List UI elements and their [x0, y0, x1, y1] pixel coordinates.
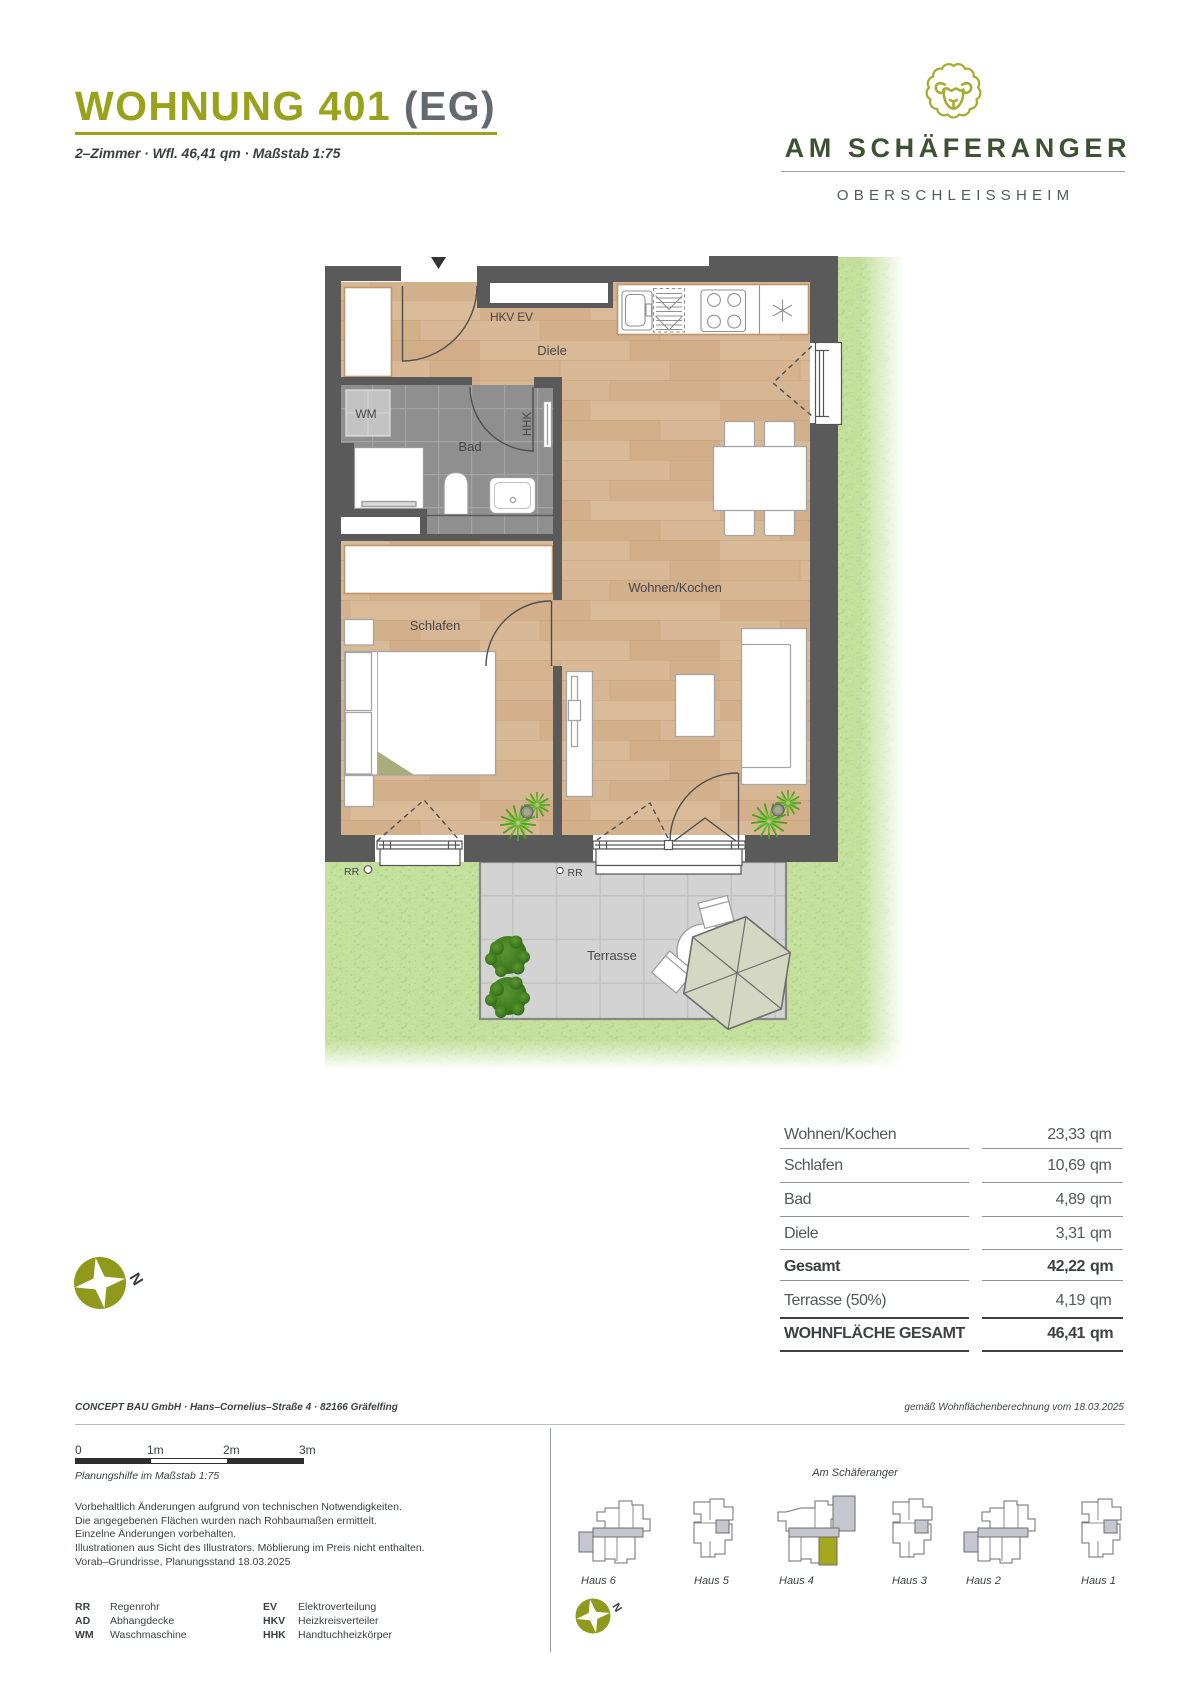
- svg-text:Diele: Diele: [537, 343, 567, 358]
- svg-text:Schlafen: Schlafen: [410, 618, 461, 633]
- svg-text:RR: RR: [344, 866, 360, 878]
- svg-text:N: N: [609, 1601, 623, 1614]
- svg-text:WM: WM: [355, 407, 376, 421]
- svg-text:RR: RR: [568, 867, 584, 879]
- svg-text:HHK: HHK: [522, 412, 534, 437]
- svg-text:HKV EV: HKV EV: [490, 310, 533, 324]
- svg-text:Bad: Bad: [458, 439, 481, 454]
- svg-text:Terrasse: Terrasse: [587, 948, 637, 963]
- svg-text:N: N: [126, 1270, 146, 1289]
- svg-text:Wohnen/Kochen: Wohnen/Kochen: [628, 580, 721, 595]
